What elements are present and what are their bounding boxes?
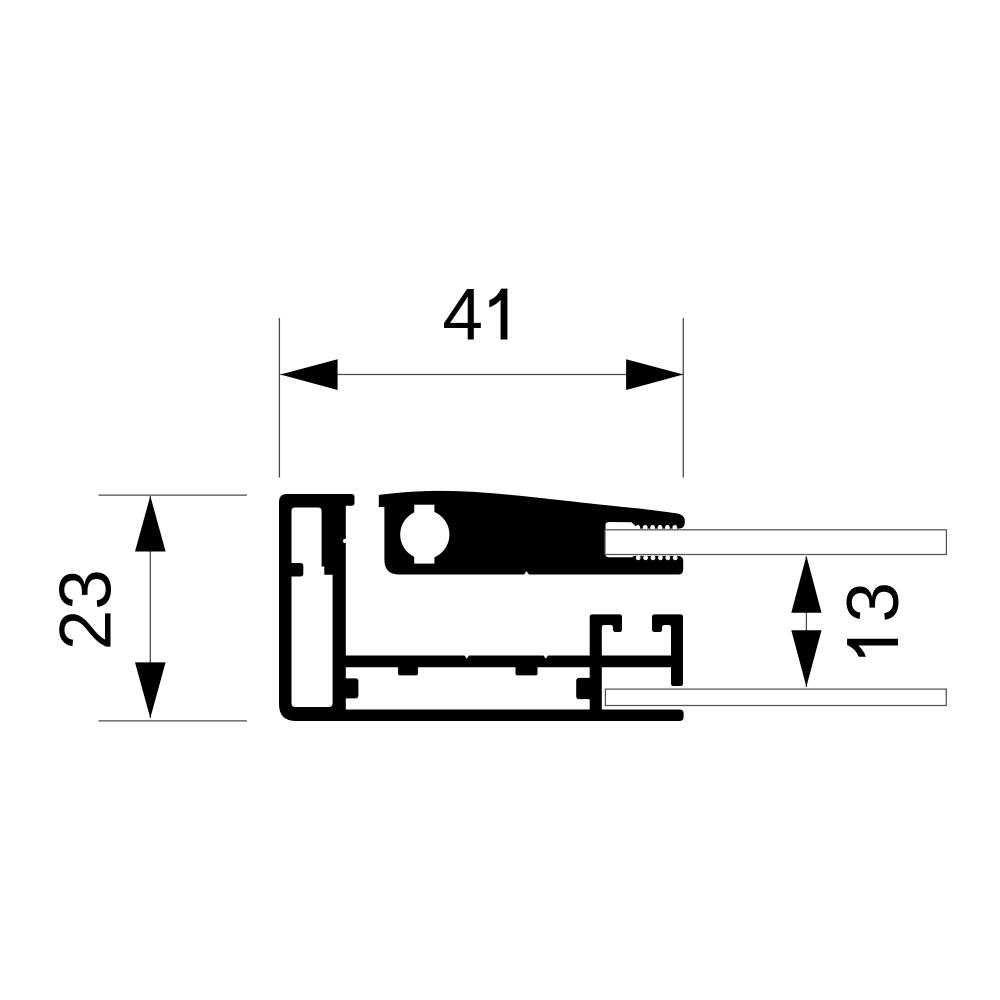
svg-text:4: 4: [442, 275, 483, 356]
svg-text:3: 3: [833, 582, 914, 623]
svg-text:23: 23: [46, 569, 127, 650]
